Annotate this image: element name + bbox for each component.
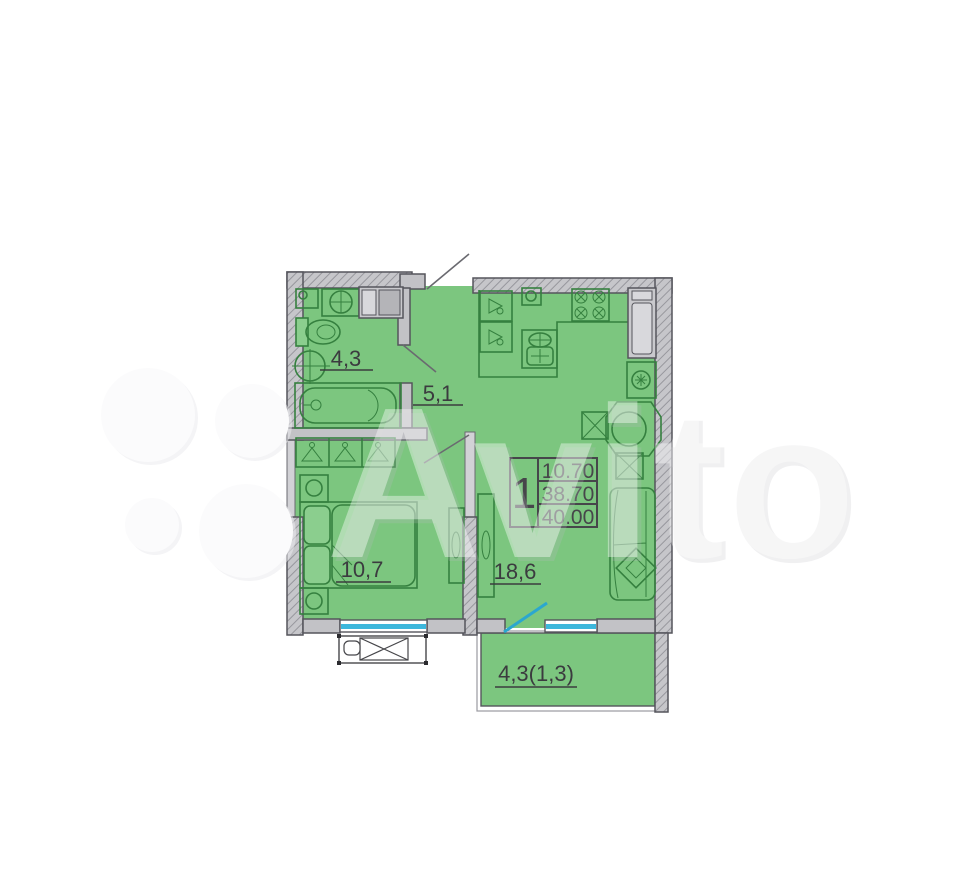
watermark-text: Avito — [326, 362, 856, 603]
ac-unit-icon — [337, 634, 428, 665]
living-window — [545, 620, 597, 632]
wall-top-left — [287, 272, 412, 288]
wall-bottom-3 — [477, 619, 505, 633]
floorplan-canvas: 4,3 5,1 10,7 18,6 4,3(1,3) 1 10.70 38.70… — [0, 0, 960, 890]
wall-left-middle — [287, 440, 295, 517]
fridge-icon — [628, 288, 656, 358]
watermark-logo-circles — [101, 368, 296, 581]
wall-bottom-1 — [303, 619, 340, 633]
entrance-door — [427, 254, 469, 289]
wall-bottom-2 — [427, 619, 465, 633]
wall-balcony-pier — [655, 633, 668, 712]
wall-bottom-4 — [597, 619, 655, 633]
vent-shaft — [359, 287, 403, 318]
room-label-balcony: 4,3(1,3) — [498, 661, 574, 686]
bedroom-window — [340, 620, 427, 632]
watermark: Avito Avito — [101, 362, 860, 607]
